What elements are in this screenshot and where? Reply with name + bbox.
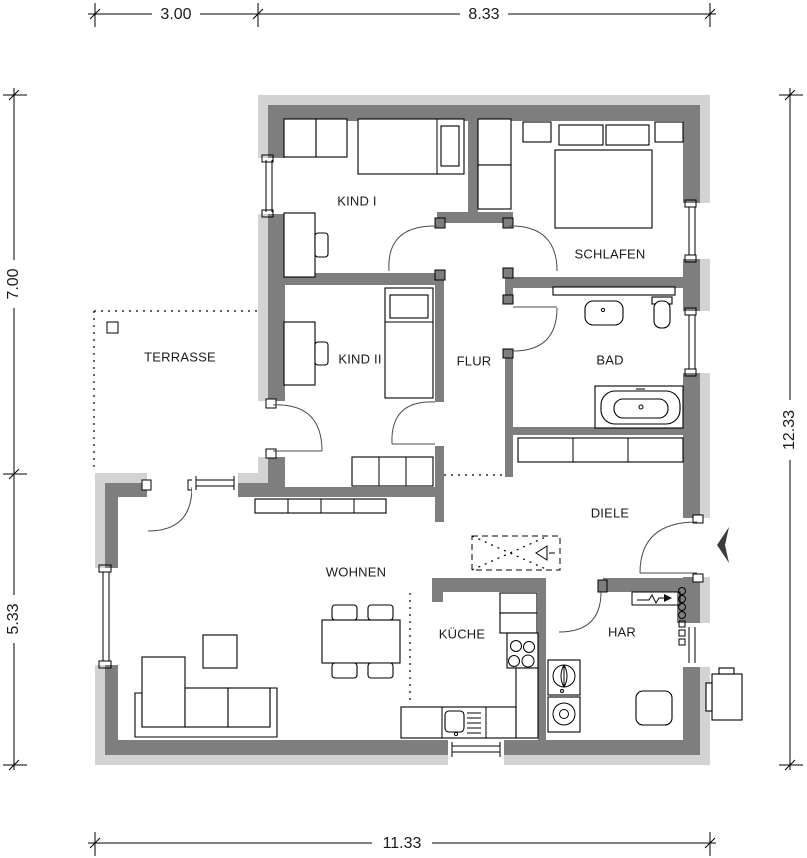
dim-right-12.33: 12.33	[781, 410, 798, 450]
window-schlafen-east	[683, 200, 710, 262]
floor-plan-drawing: KIND I SCHLAFEN KIND II FLUR BAD TERRASS…	[0, 0, 807, 858]
room-label-schlafen: SCHLAFEN	[575, 246, 646, 261]
window-bad-east	[683, 308, 710, 376]
dim-top-3.00: 3.00	[160, 6, 191, 23]
floor-tank	[636, 691, 672, 725]
terrace-outline	[94, 311, 257, 472]
dim-top-8.33: 8.33	[468, 6, 499, 23]
washing-machine	[548, 697, 580, 732]
counter-with-sink	[401, 707, 516, 738]
window-kind1-west	[258, 155, 285, 217]
coffee-table	[203, 635, 237, 668]
sideboard	[518, 438, 683, 462]
room-label-diele: DIELE	[591, 505, 630, 520]
room-label-kind1: KIND I	[337, 193, 376, 208]
dim-bottom-11.33: 11.33	[383, 835, 422, 852]
room-label-kueche: KÜCHE	[439, 626, 486, 641]
floor-plan-page: KIND I SCHLAFEN KIND II FLUR BAD TERRASS…	[0, 0, 807, 858]
terrace-post	[107, 322, 118, 333]
window-har-east	[683, 623, 710, 667]
window-kueche-south	[448, 739, 504, 765]
room-label-har: HAR	[608, 624, 636, 639]
heat-pump-unit	[706, 668, 742, 720]
dim-left-5.33: 5.33	[5, 603, 22, 634]
window-wohnen-west	[95, 565, 118, 668]
sink	[445, 711, 464, 732]
entrance-arrow-icon	[717, 527, 729, 563]
cooktop	[507, 633, 538, 668]
room-label-flur: FLUR	[457, 353, 492, 368]
wc-bowl	[654, 301, 670, 328]
furniture-diele	[518, 438, 683, 462]
room-label-terrasse: TERRASSE	[144, 349, 216, 364]
dim-left-7.00: 7.00	[5, 268, 22, 299]
bathtub	[595, 386, 683, 428]
room-label-bad: BAD	[596, 352, 623, 367]
sink	[585, 301, 623, 325]
dryer	[548, 660, 580, 695]
room-label-kind2: KIND II	[338, 351, 381, 366]
window-wohnen-north	[192, 473, 238, 497]
room-label-wohnen: WOHNEN	[326, 564, 386, 579]
